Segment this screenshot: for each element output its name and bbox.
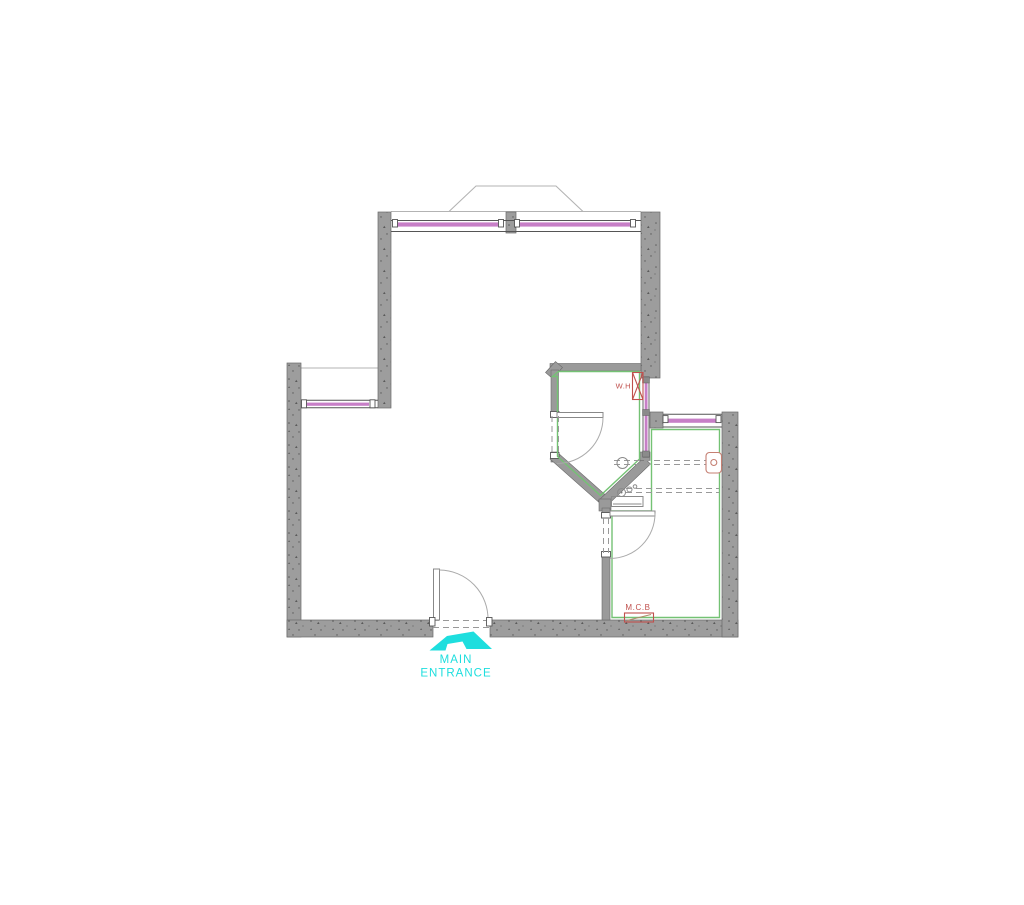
top-room-right-wall	[641, 212, 660, 378]
top-room-left-wall	[378, 212, 391, 408]
door-swing-arc	[440, 570, 489, 620]
window-jamb	[393, 220, 398, 228]
counter	[612, 497, 644, 507]
projection-trapezoid	[449, 186, 583, 212]
outer-walls	[287, 212, 738, 637]
bathroom-top-wall	[550, 364, 641, 372]
window-glass-left	[397, 222, 499, 226]
left-outer-wall	[287, 363, 301, 637]
toilet-valve	[711, 460, 717, 466]
bathroom-walls	[546, 362, 651, 621]
door-leaf	[610, 511, 655, 516]
floor-drain-circle	[617, 458, 628, 469]
window-cap	[643, 451, 650, 457]
left-window-band	[301, 400, 378, 408]
door-swing-arc	[610, 514, 655, 559]
window-jamb	[515, 220, 520, 228]
window-jamb	[370, 400, 375, 408]
door-leaf	[557, 413, 603, 418]
window-glass	[306, 403, 369, 406]
main-entrance-marker: MAIN ENTRANCE	[420, 632, 492, 680]
window-jamb	[663, 416, 668, 423]
bathroom-diagonal-wall-left	[550, 452, 610, 506]
floor-plan-drawing: W.H M.C.B MAIN ENTRANCE	[0, 0, 1024, 905]
door-jamb	[430, 618, 436, 627]
water-heater-label: W.H	[616, 382, 631, 391]
faucet-dot	[621, 492, 623, 494]
window-glass	[668, 419, 716, 423]
window-glass-right	[519, 222, 631, 226]
door-swing-arc	[557, 418, 603, 464]
faucet-circle	[627, 487, 632, 492]
right-outer-wall	[722, 412, 738, 637]
bay-projection-outline	[301, 186, 641, 368]
bottom-wall-right	[490, 620, 738, 637]
door-leaf	[434, 569, 440, 620]
hall-wall-lower	[602, 553, 610, 620]
main-entrance-label-line1: MAIN	[440, 654, 473, 666]
window-jamb	[499, 220, 504, 228]
floor-plan-canvas: W.H M.C.B MAIN ENTRANCE	[0, 0, 1024, 905]
hall-door	[604, 511, 656, 559]
door-jamb	[602, 552, 611, 558]
window-cap	[643, 410, 650, 416]
door-jamb	[602, 513, 611, 519]
door-jamb	[487, 618, 493, 627]
window-jamb	[302, 400, 307, 408]
window-jamb	[716, 416, 721, 423]
water-heater-symbol	[633, 373, 644, 400]
main-entrance-arrow-icon	[430, 632, 493, 651]
main-entrance-label-line2: ENTRANCE	[420, 668, 491, 680]
window-jamb	[631, 220, 636, 228]
room-outlines	[553, 372, 720, 618]
faucet-circle	[633, 485, 637, 489]
right-room-top-pier	[650, 412, 663, 428]
right-room-outline	[612, 430, 720, 618]
window-glass	[645, 379, 648, 455]
mcb-label: M.C.B	[625, 603, 650, 612]
entrance-door	[430, 569, 493, 628]
toilet-fixture	[706, 453, 722, 474]
bottom-wall-left	[287, 620, 433, 637]
right-room-window-band	[663, 414, 722, 427]
